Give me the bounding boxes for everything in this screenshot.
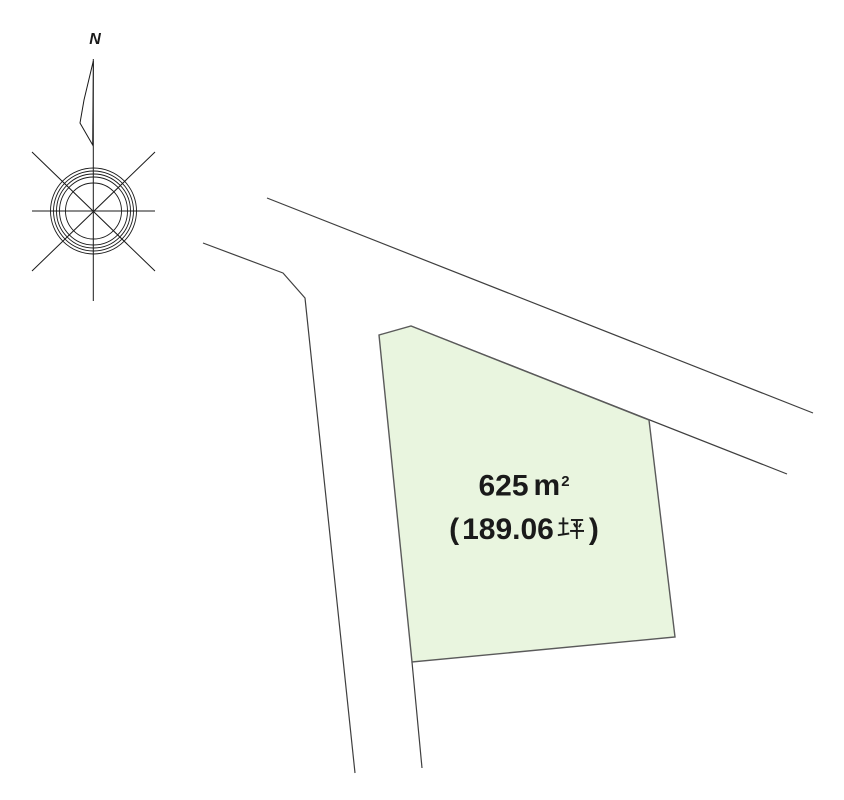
compass-rose	[32, 59, 155, 301]
tsubo-close-paren: )	[589, 513, 599, 546]
area-sqm-unit-exponent: 2	[561, 473, 569, 490]
tsubo-kanji-glyph	[557, 514, 584, 542]
parcel-area-label: 625m2 (189.06)	[384, 458, 664, 554]
site-plan-canvas: N 625m2 (189.06)	[0, 0, 844, 800]
tsubo-open-paren: (	[449, 513, 459, 546]
area-sqm-value: 625	[478, 469, 528, 502]
area-sqm-unit: m2	[534, 469, 570, 502]
area-sqm-unit-base: m	[534, 469, 561, 502]
parcel-area-tsubo-line: (189.06)	[384, 506, 664, 554]
area-tsubo-value: 189.06	[462, 513, 554, 546]
road-west-edge-line	[203, 243, 355, 773]
parcel-area-sqm-line: 625m2	[384, 458, 664, 506]
site-plan-drawing	[0, 0, 844, 800]
road-east-edge-line	[412, 662, 422, 768]
compass-north-pennant	[80, 61, 93, 145]
compass-north-label: N	[80, 28, 110, 52]
